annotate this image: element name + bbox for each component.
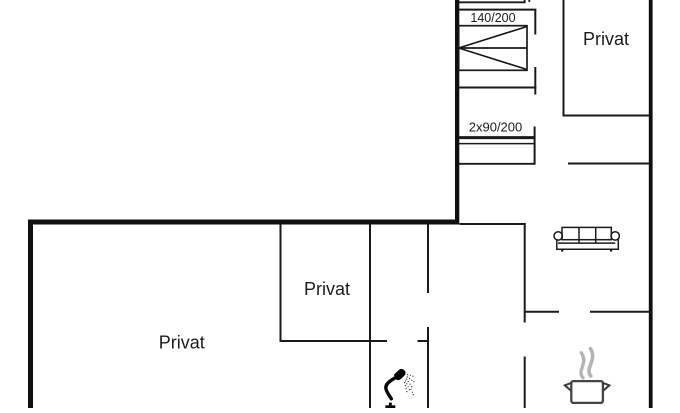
svg-text:2x90/200: 2x90/200 [469, 120, 523, 135]
svg-text:Privat: Privat [583, 29, 629, 49]
svg-text:140/200: 140/200 [470, 11, 515, 25]
svg-text:Privat: Privat [304, 279, 350, 299]
svg-text:Privat: Privat [159, 333, 205, 353]
